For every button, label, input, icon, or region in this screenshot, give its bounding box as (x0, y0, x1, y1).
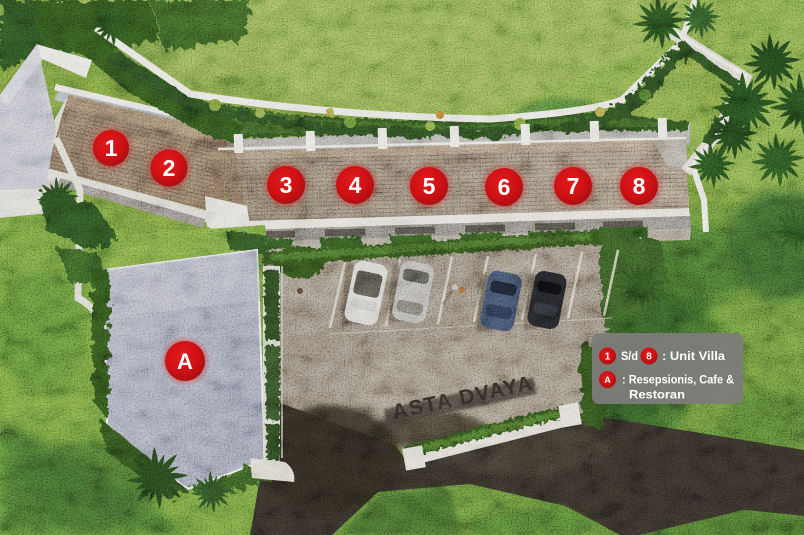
svg-text:: Resepsionis, Cafe &: : Resepsionis, Cafe & (622, 373, 734, 387)
svg-text:S/d: S/d (621, 349, 638, 363)
svg-text:: Unit Villa: : Unit Villa (662, 349, 725, 363)
svg-text:4: 4 (349, 172, 362, 198)
svg-text:8: 8 (646, 352, 652, 363)
svg-text:1: 1 (105, 135, 118, 161)
svg-text:A: A (177, 349, 193, 374)
svg-text:5: 5 (423, 173, 436, 199)
svg-text:1: 1 (605, 352, 611, 363)
svg-text:3: 3 (280, 172, 293, 198)
svg-text:6: 6 (498, 174, 511, 200)
svg-text:8: 8 (633, 173, 646, 199)
svg-text:A: A (604, 375, 611, 385)
svg-text:2: 2 (163, 155, 176, 181)
svg-text:Restoran: Restoran (629, 388, 685, 402)
svg-text:7: 7 (567, 173, 580, 199)
